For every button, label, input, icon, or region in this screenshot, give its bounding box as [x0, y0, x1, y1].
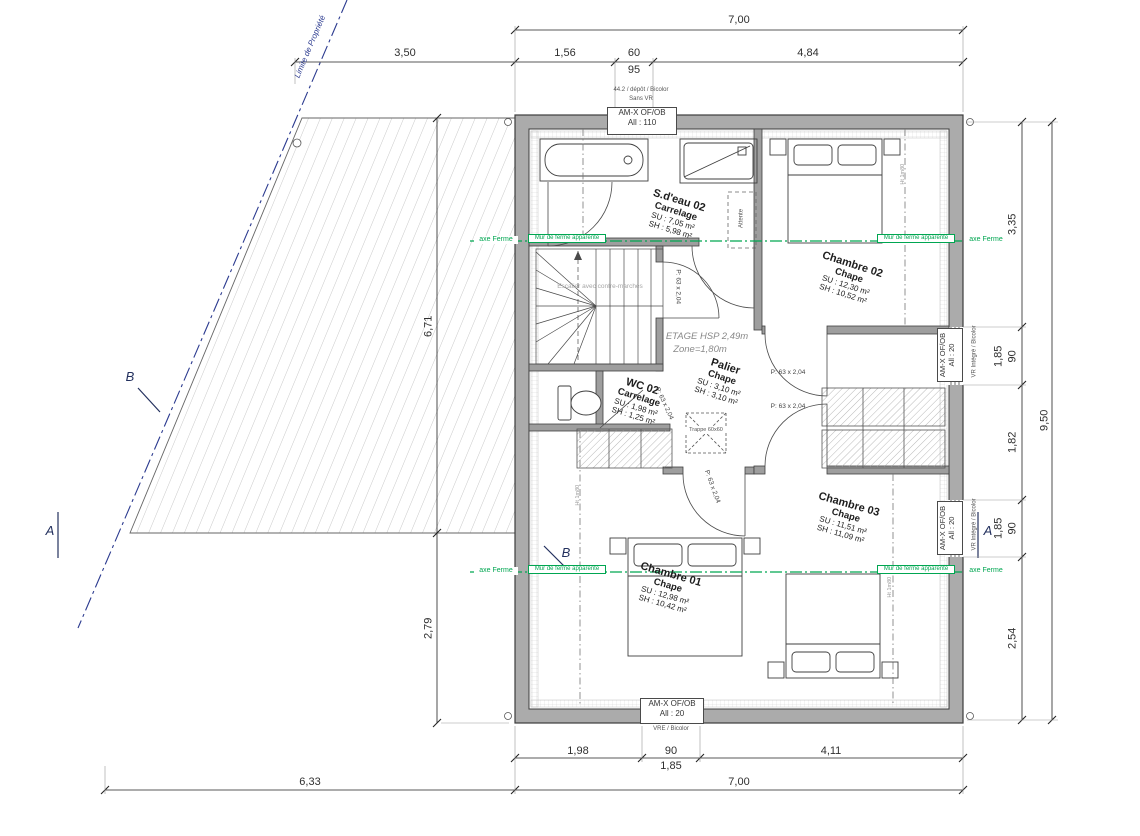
dim-terrace: 6,33: [290, 776, 330, 789]
window-right-upper-ref: AM-X OF/OB: [938, 329, 947, 381]
dim-top-2: 1,56: [545, 47, 585, 60]
ht-zone-chambre03: Ht 1m80: [887, 569, 893, 605]
dim-top-3b: 95: [614, 64, 654, 77]
ht-zone-chambre01: Ht 1m80: [575, 477, 581, 513]
door-size-stairs: P: 63 x 2,04: [674, 255, 681, 319]
window-right-lower-ref: AM-X OF/OB: [938, 502, 947, 554]
window-top-note2: Sans VR: [591, 96, 691, 103]
window-top-ref: AM-X OF/OB: [608, 108, 676, 118]
axe-ferme-top-right: axe Ferme: [964, 236, 1008, 244]
dim-right-5: 2,54: [1007, 618, 1020, 658]
axe-ferme-bottom-left: axe Ferme: [474, 567, 518, 575]
door-size-chambre03: P: 63 x 2,04: [756, 403, 820, 410]
window-top-allege: All : 110: [608, 118, 676, 128]
dim-left-1: 6,71: [423, 306, 436, 346]
window-bottom-note: VRE / Bicolor: [611, 726, 731, 733]
door-size-chambre02: P: 63 x 2,04: [756, 369, 820, 376]
dim-right-2b: 1,85: [993, 336, 1006, 376]
window-top-note1: 44.2 / dépôt / Bicolor: [591, 87, 691, 94]
dim-right-3: 1,82: [1007, 422, 1020, 462]
window-right-upper-label: AM-X OF/OB All : 20: [937, 328, 963, 382]
section-a-left: A: [42, 524, 58, 539]
dim-bottom-overall: 7,00: [719, 776, 759, 789]
dim-bottom-1: 1,98: [558, 745, 598, 758]
etage-note: ETAGE HSP 2,49m: [642, 332, 772, 343]
mur-ferme-top-left: Mur de ferme apparente: [528, 234, 606, 243]
dim-bottom-2b: 1,85: [651, 760, 691, 773]
mur-ferme-bottom-left: Mur de ferme apparente: [528, 565, 606, 574]
trappe-note: Trappe 60x60: [676, 427, 736, 433]
dim-right-2: 90: [1007, 336, 1020, 376]
dim-right-4: 90: [1007, 508, 1020, 548]
shower: [680, 139, 757, 183]
attente-note: Attente: [739, 193, 746, 243]
window-bottom-label: AM-X OF/OB All : 20: [640, 698, 704, 724]
axe-ferme-bottom-right: axe Ferme: [964, 567, 1008, 575]
section-a-right: A: [980, 524, 996, 539]
mur-ferme-top-right: Mur de ferme apparente: [877, 234, 955, 243]
dim-bottom-3: 4,11: [811, 745, 851, 758]
window-right-lower-allege: All : 20: [947, 502, 956, 554]
section-b-bottom: B: [558, 546, 574, 561]
section-b-top: B: [122, 370, 138, 385]
dim-top-1: 3,50: [385, 47, 425, 60]
dim-right-1: 3,35: [1007, 204, 1020, 244]
dim-right-overall: 9,50: [1039, 400, 1052, 440]
dim-left-2: 2,79: [423, 608, 436, 648]
bed-chambre03: [768, 574, 898, 678]
window-bottom-allege: All : 20: [641, 709, 703, 719]
window-bottom-ref: AM-X OF/OB: [641, 699, 703, 709]
stairs: [536, 249, 663, 364]
dim-top-4: 4,84: [788, 47, 828, 60]
window-right-lower-note: VR Intégré / Bicolor: [972, 494, 979, 554]
stairs-note: Escalier avec contre-marches: [535, 283, 665, 290]
window-right-upper-allege: All : 20: [947, 329, 956, 381]
ht-zone-chambre02: Ht 1m80: [900, 156, 906, 192]
floor-plan-linework: [0, 0, 1140, 836]
terrace-hatch: [130, 118, 515, 533]
floor-plan: 7,00 3,50 1,56 60 95 4,84 3,35 90 1,85 1…: [0, 0, 1140, 836]
dim-top-3: 60: [614, 47, 654, 60]
dim-bottom-2: 90: [651, 745, 691, 758]
bathtub: [540, 139, 648, 181]
zone-note: Zone=1,80m: [655, 345, 745, 356]
axe-ferme-top-left: axe Ferme: [474, 236, 518, 244]
dim-top-overall: 7,00: [719, 14, 759, 27]
window-top-label: AM-X OF/OB All : 110: [607, 107, 677, 135]
window-right-lower-label: AM-X OF/OB All : 20: [937, 501, 963, 555]
window-right-upper-note: VR Intégré / Bicolor: [972, 321, 979, 381]
bed-chambre02: [770, 139, 900, 243]
